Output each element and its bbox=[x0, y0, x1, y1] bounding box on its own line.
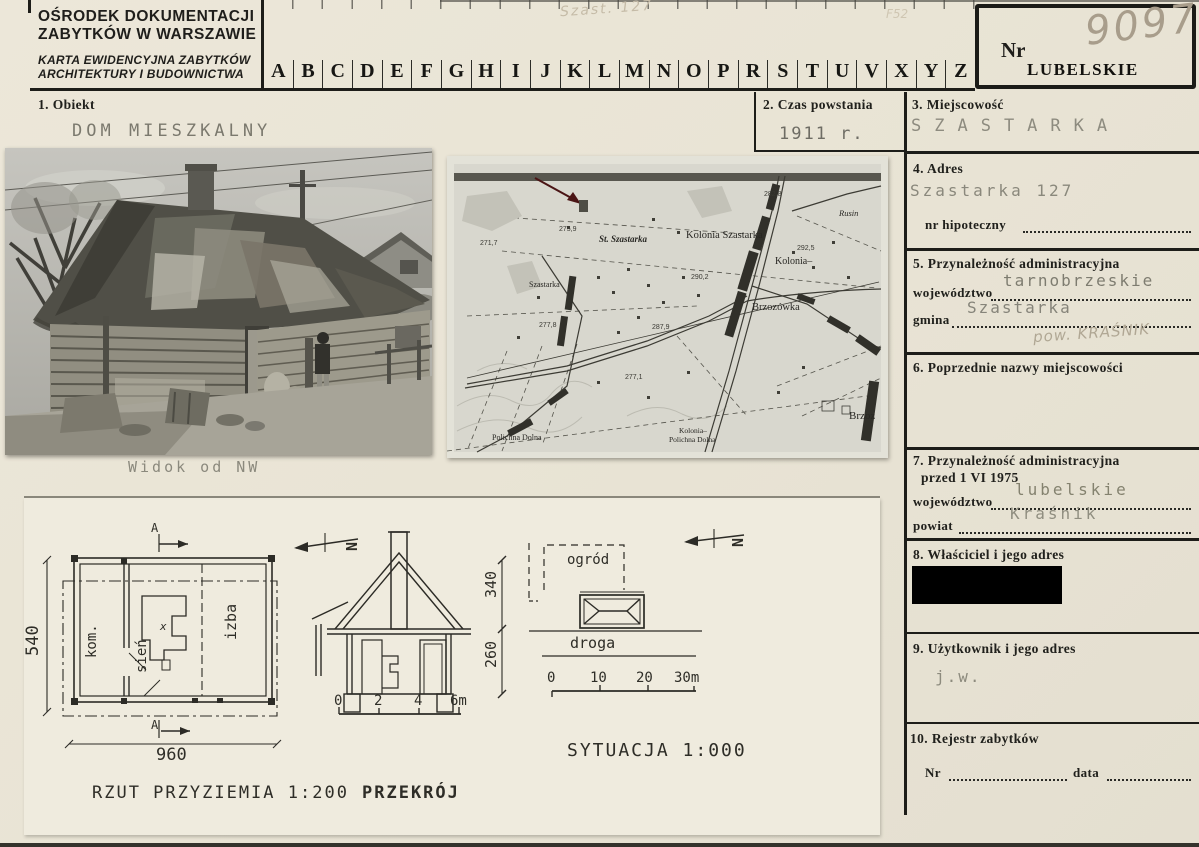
map-elevation: 271,7 bbox=[480, 240, 498, 247]
dim-width-label: 960 bbox=[156, 745, 187, 765]
index-letter: M bbox=[619, 60, 649, 89]
voivodeship-value: tarnobrzeskie bbox=[1003, 271, 1154, 290]
nr-label: Nr bbox=[1001, 38, 1026, 63]
plan-caption: RZUT PRZYZIEMIA 1:200 bbox=[92, 783, 349, 803]
rule-s9 bbox=[905, 722, 1199, 724]
scale-situation-0: 0 bbox=[547, 670, 555, 686]
north-mark-situation: N bbox=[728, 538, 746, 547]
index-letter: O bbox=[678, 60, 708, 89]
index-letter: K bbox=[560, 60, 590, 89]
voivodeship-pre-value: lubelskie bbox=[1015, 480, 1129, 499]
index-letter: E bbox=[382, 60, 412, 89]
index-letter: C bbox=[322, 60, 352, 89]
section-1-label: 1. Obiekt bbox=[38, 97, 95, 113]
index-letter: H bbox=[471, 60, 501, 89]
section-9-user: 9. Użytkownik i jego adres j.w. bbox=[905, 635, 1199, 719]
section-7-label2: przed 1 VI 1975 bbox=[921, 470, 1019, 486]
index-letter: Y bbox=[916, 60, 946, 89]
section-7-admin-pre1975: 7. Przynależność administracyjna przed 1… bbox=[905, 450, 1199, 536]
map-label-rusin: Rusin bbox=[839, 208, 858, 218]
rule-s4 bbox=[905, 248, 1199, 251]
section-3-label: 3. Miejscowość bbox=[912, 97, 1004, 113]
corner-mark bbox=[28, 0, 31, 13]
scale-situation-20: 20 bbox=[636, 670, 653, 686]
hypothec-dotted-line bbox=[1023, 217, 1191, 233]
section-caption: PRZEKRÓJ bbox=[362, 781, 460, 803]
object-value: DOM MIESZKALNY bbox=[72, 121, 271, 141]
map-label-brzozowka: Brzozówka bbox=[752, 302, 800, 313]
org-title-line2: ZABYTKÓW W WARSZAWIE bbox=[38, 26, 260, 44]
dim-depth-label: 540 bbox=[24, 625, 43, 656]
date-value: 1911 r. bbox=[779, 124, 865, 144]
locality-value: SZASTARKA bbox=[911, 116, 1120, 136]
gmina-label: gmina bbox=[913, 312, 950, 328]
section-mark-top: A bbox=[151, 521, 159, 535]
registry-data-label: data bbox=[1073, 765, 1099, 781]
index-letter: I bbox=[500, 60, 530, 89]
map: St. Szastarka Kolonia Szastarka Kolonia–… bbox=[447, 156, 888, 458]
map-elevation: 275,9 bbox=[559, 226, 577, 233]
scale-situation-30m: 30m bbox=[674, 670, 699, 686]
nr-box: Nr LUBELSKIE 9097 bbox=[975, 4, 1196, 89]
dim-wall-label: 260 bbox=[482, 641, 500, 668]
map-elevation: 290,2 bbox=[691, 274, 709, 281]
index-letter: U bbox=[827, 60, 857, 89]
map-elevation: 287,9 bbox=[652, 324, 670, 331]
card-type-line2: ARCHITEKTURY I BUDOWNICTWA bbox=[38, 67, 260, 81]
scale-section-0: 0 bbox=[334, 693, 342, 709]
index-letter: G bbox=[441, 60, 471, 89]
index-letter: D bbox=[352, 60, 382, 89]
redaction-block bbox=[912, 566, 1062, 604]
section-9-label: 9. Użytkownik i jego adres bbox=[913, 641, 1076, 657]
org-title-line1: OŚRODEK DOKUMENTACJI bbox=[38, 8, 260, 26]
section-8-label: 8. Właściciel i jego adres bbox=[913, 547, 1064, 563]
rule-under-s2 bbox=[754, 150, 905, 152]
address-value: Szastarka 127 bbox=[910, 181, 1074, 200]
section-10-registry: 10. Rejestr zabytków Nr data bbox=[905, 725, 1199, 815]
stove-mark: x bbox=[159, 620, 167, 633]
drawings-sheet: kom. sień izba x A A 960 540 N 0 2 4 6m … bbox=[24, 498, 880, 835]
section-7-label: 7. Przynależność administracyjna bbox=[913, 453, 1120, 469]
photo-caption: Widok od NW bbox=[128, 458, 260, 476]
map-label-szastarka: Szastarka bbox=[529, 280, 560, 289]
rule-under-s3 bbox=[905, 151, 1199, 154]
registry-data-dotted-line bbox=[1107, 765, 1191, 781]
gmina-value: Szastarka bbox=[967, 298, 1072, 317]
section-5-label: 5. Przynależność administracyjna bbox=[913, 256, 1120, 272]
section-4-address: 4. Adres Szastarka 127 nr hipoteczny bbox=[905, 155, 1199, 248]
situation-caption: SYTUACJA 1:000 bbox=[567, 740, 747, 761]
map-elevation: 277,1 bbox=[625, 374, 643, 381]
photo bbox=[5, 148, 432, 455]
map-label-kolonia-polichna-1: Kolonia– bbox=[679, 426, 707, 435]
map-elevation: 282,8 bbox=[764, 191, 782, 198]
map-label-kolonia: Kolonia– bbox=[775, 256, 812, 267]
pencil-note-f: F52 bbox=[886, 7, 908, 21]
alphabet-index-strip: A B C D E F G H I J K L M N O P R S T U … bbox=[264, 26, 975, 89]
scale-section-4: 4 bbox=[414, 693, 422, 709]
scale-situation-10: 10 bbox=[590, 670, 607, 686]
section-2-label: 2. Czas powstania bbox=[763, 97, 873, 113]
index-letter: R bbox=[738, 60, 768, 89]
map-label-brzoz: Brzoz bbox=[849, 410, 875, 422]
index-letter: T bbox=[797, 60, 827, 89]
section-8-owner: 8. Właściciel i jego adres bbox=[905, 541, 1199, 629]
section-6-label: 6. Poprzednie nazwy miejscowości bbox=[913, 360, 1123, 376]
dim-roof-label: 340 bbox=[482, 571, 500, 598]
index-letter: N bbox=[649, 60, 679, 89]
rule-s8 bbox=[905, 632, 1199, 634]
scale-section-2: 2 bbox=[374, 693, 382, 709]
road-label: droga bbox=[570, 634, 615, 652]
index-letter: F bbox=[411, 60, 441, 89]
garden-label: ogród bbox=[567, 552, 609, 568]
index-letter: A bbox=[264, 60, 293, 89]
index-letter: B bbox=[293, 60, 323, 89]
room-label-izba: izba bbox=[222, 604, 240, 640]
map-label-polichna-dolna: Polichna Dolna bbox=[492, 433, 542, 442]
map-base bbox=[447, 156, 888, 458]
section-10-label: 10. Rejestr zabytków bbox=[910, 731, 1039, 747]
pencil-note-top: Szast. 127 bbox=[560, 0, 654, 20]
north-mark-plan: N bbox=[342, 542, 360, 551]
room-label-sien: sień bbox=[134, 639, 150, 673]
registry-number-handwritten: 9097 bbox=[1083, 0, 1199, 55]
map-label-kolonia-szastarka: Kolonia Szastarka bbox=[686, 230, 763, 241]
header-rule bbox=[30, 88, 975, 91]
registry-nr-dotted-line bbox=[949, 765, 1067, 781]
registry-nr-label: Nr bbox=[925, 765, 941, 781]
voivodeship-pre-label: województwo bbox=[913, 494, 993, 510]
map-elevation: 292,5 bbox=[797, 245, 815, 252]
photo-illustration bbox=[5, 148, 432, 455]
scan-edge-bottom bbox=[0, 843, 1199, 847]
voivodeship-stamp: LUBELSKIE bbox=[1027, 60, 1139, 80]
section-6-former-names: 6. Poprzednie nazwy miejscowości bbox=[905, 355, 1199, 445]
index-letter: L bbox=[589, 60, 619, 89]
section-5-admin: 5. Przynależność administracyjna wojewód… bbox=[905, 252, 1199, 350]
section-mark-bottom: A bbox=[151, 718, 159, 732]
powiat-label: powiat bbox=[913, 518, 953, 534]
scale-section-6m: 6m bbox=[450, 693, 467, 709]
map-label-kolonia-polichna-2: Polichna Dolna bbox=[669, 435, 715, 444]
map-elevation: 277,8 bbox=[539, 322, 557, 329]
index-letter: P bbox=[708, 60, 738, 89]
index-letter: X bbox=[886, 60, 916, 89]
index-letter: V bbox=[856, 60, 886, 89]
powiat-value: Kraśnik bbox=[1010, 504, 1098, 523]
user-value: j.w. bbox=[935, 667, 982, 686]
technical-drawings: kom. sień izba x A A 960 540 N 0 2 4 6m … bbox=[24, 498, 880, 835]
room-label-kom: kom. bbox=[84, 624, 100, 658]
section-4-label: 4. Adres bbox=[913, 161, 963, 177]
index-letter: S bbox=[767, 60, 797, 89]
index-letter: Z bbox=[945, 60, 975, 89]
record-card: OŚRODEK DOKUMENTACJI ZABYTKÓW W WARSZAWI… bbox=[0, 0, 1199, 847]
divider-s1-s2 bbox=[754, 92, 756, 151]
hypothec-label: nr hipoteczny bbox=[925, 217, 1006, 233]
header-org-block: OŚRODEK DOKUMENTACJI ZABYTKÓW W WARSZAWI… bbox=[38, 8, 260, 81]
index-letter: J bbox=[530, 60, 560, 89]
card-type-line1: KARTA EWIDENCYJNA ZABYTKÓW bbox=[38, 53, 260, 67]
map-label-st-szastarka: St. Szastarka bbox=[599, 234, 647, 244]
